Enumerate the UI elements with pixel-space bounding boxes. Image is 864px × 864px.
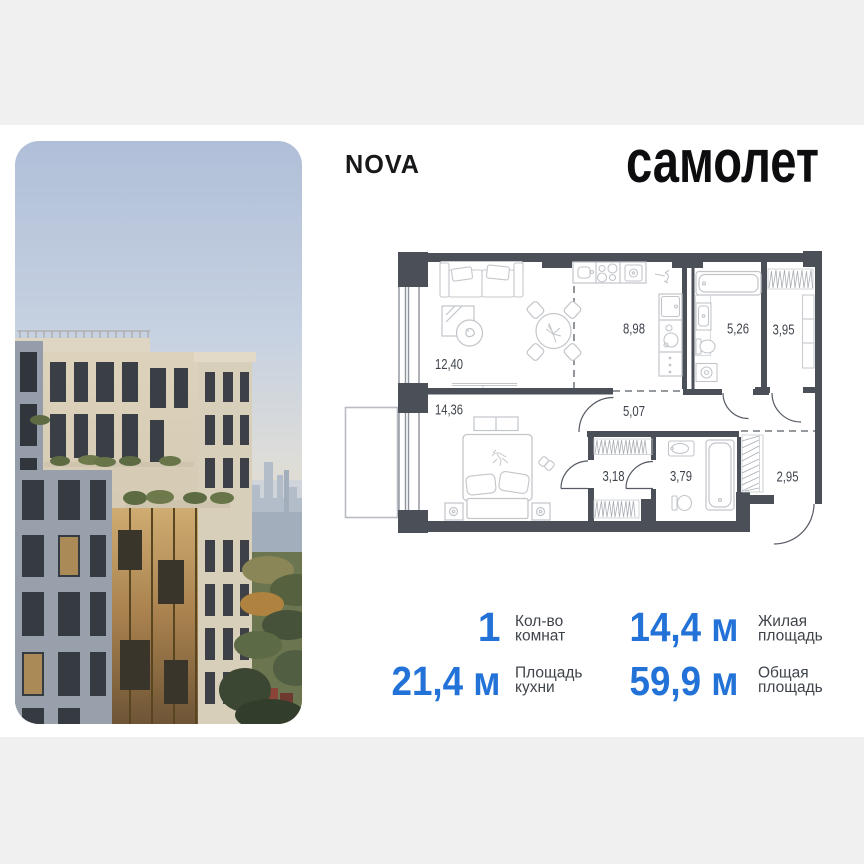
- svg-text:NOVA: NOVA: [345, 151, 420, 179]
- svg-text:комнат: комнат: [515, 628, 565, 645]
- svg-text:площадь: площадь: [758, 679, 823, 696]
- svg-text:площадь: площадь: [758, 628, 823, 645]
- svg-text:59,9 м: 59,9 м: [630, 658, 739, 704]
- svg-text:8,98: 8,98: [623, 322, 645, 338]
- svg-text:12,40: 12,40: [435, 357, 463, 373]
- svg-text:кухни: кухни: [515, 679, 555, 696]
- svg-text:1: 1: [478, 604, 501, 650]
- svg-text:самолет: самолет: [626, 128, 819, 195]
- svg-text:14,36: 14,36: [435, 403, 463, 419]
- svg-text:3,18: 3,18: [603, 469, 625, 485]
- svg-text:5,26: 5,26: [727, 322, 749, 338]
- svg-text:3,79: 3,79: [670, 469, 692, 485]
- svg-text:5,07: 5,07: [623, 404, 645, 420]
- svg-text:2,95: 2,95: [777, 470, 799, 486]
- svg-text:21,4 м: 21,4 м: [392, 658, 501, 704]
- svg-text:14,4 м: 14,4 м: [630, 604, 739, 650]
- svg-text:3,95: 3,95: [773, 323, 795, 339]
